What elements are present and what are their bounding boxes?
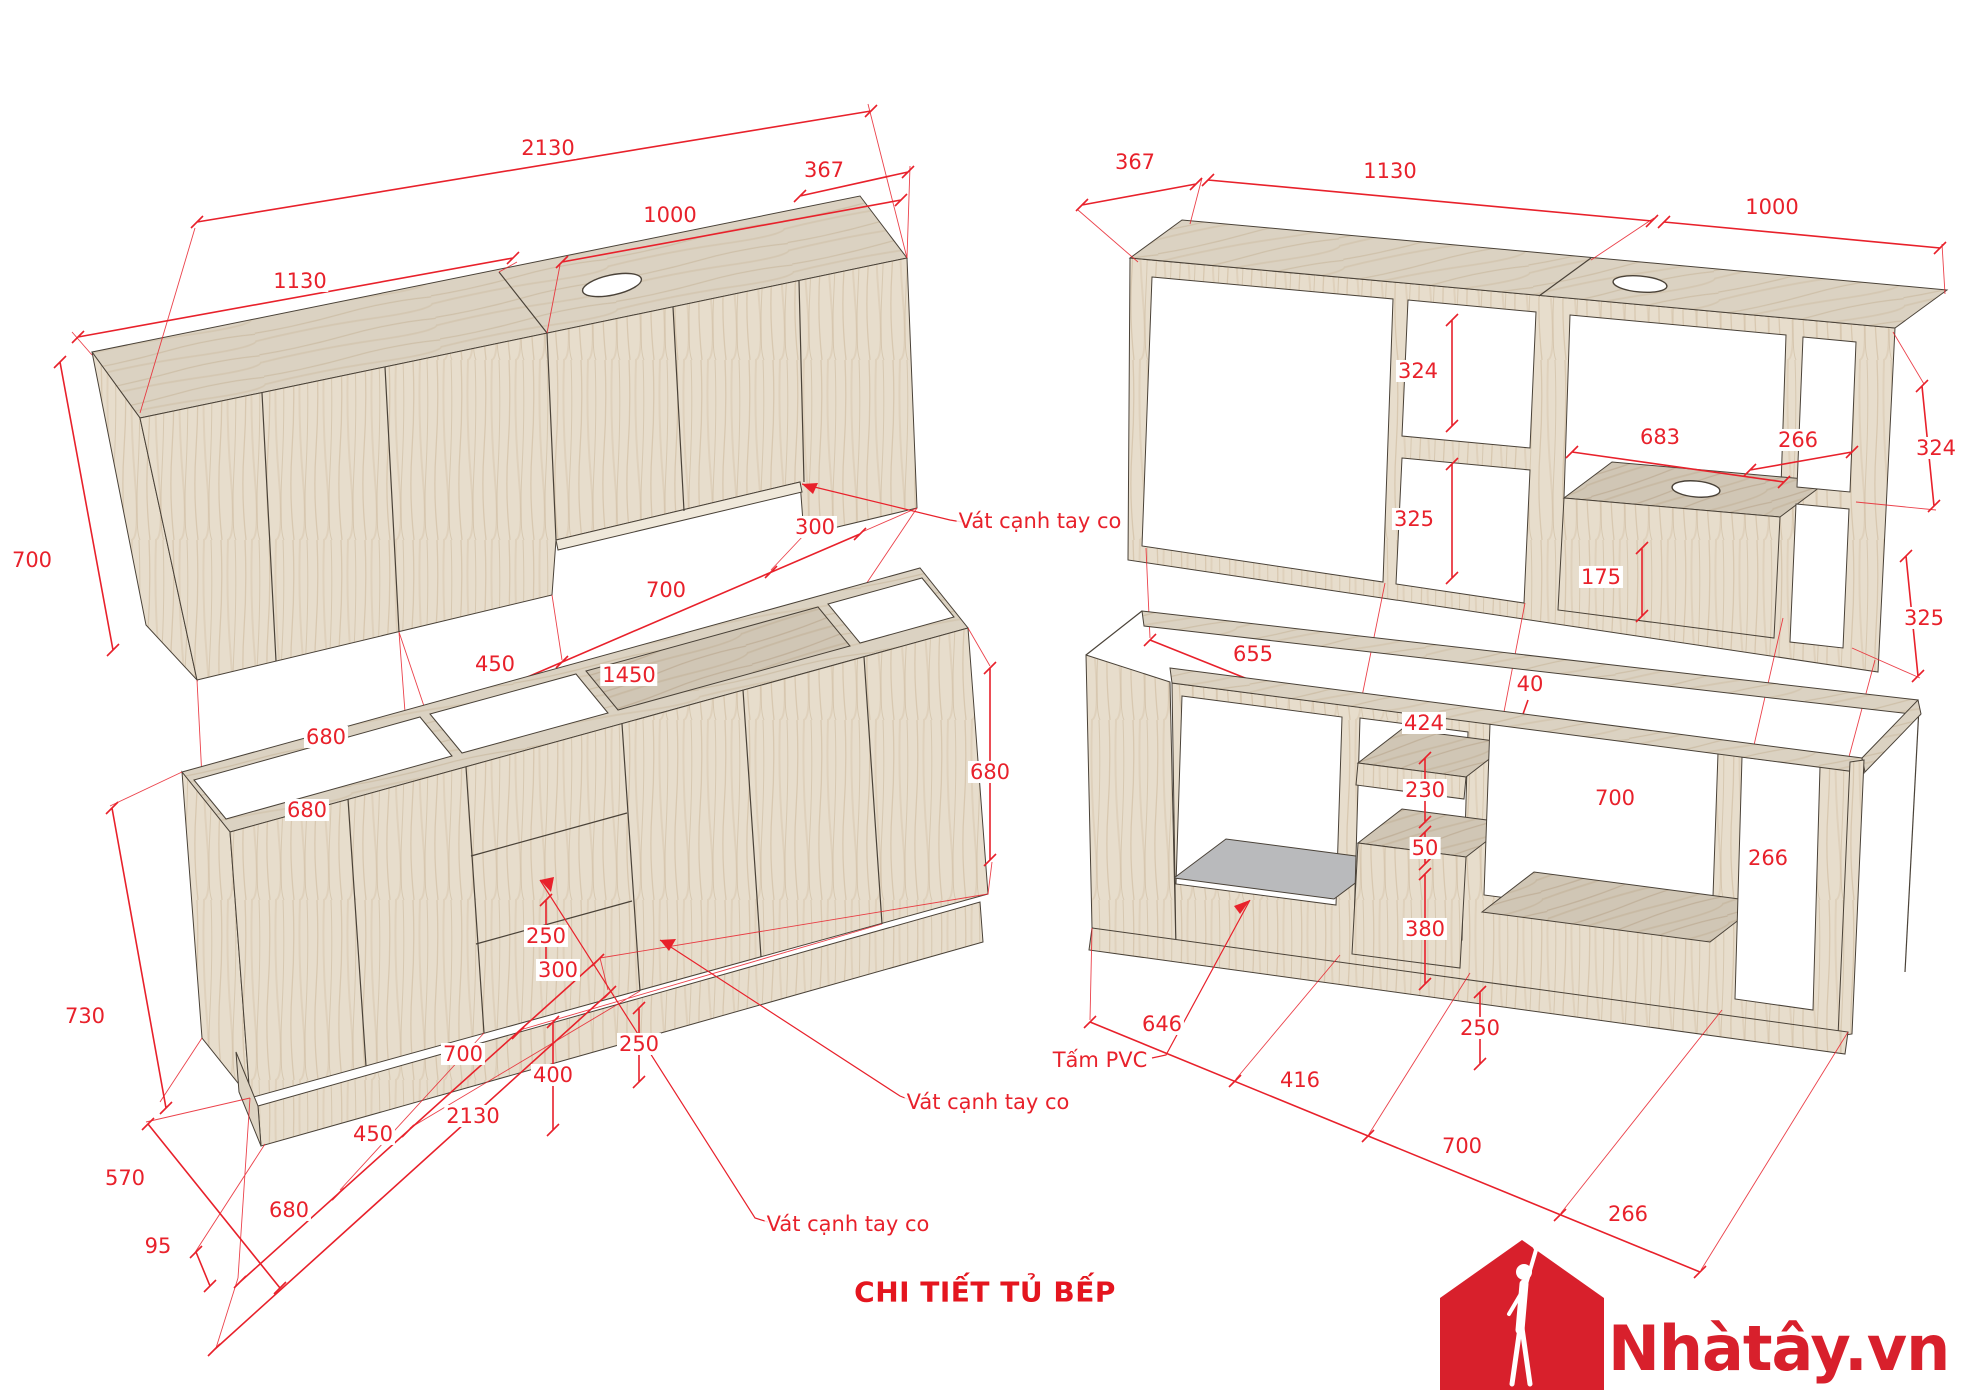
logo-house-icon xyxy=(1440,1240,1604,1390)
opening-right-upper xyxy=(1797,337,1856,492)
opening-424-lower xyxy=(1396,458,1530,603)
base-cabinet-back-view xyxy=(1084,611,1921,1278)
base-cabinet-front-view xyxy=(106,568,996,1356)
opening-right-lower xyxy=(1790,504,1849,648)
opening-left-655 xyxy=(1142,277,1393,582)
cabinet-drawings xyxy=(0,0,1974,1400)
drawing-canvas: 2130100011303677006804507003006801450Vát… xyxy=(0,0,1974,1400)
far-right-edge xyxy=(1905,707,1919,972)
left-depth-edge xyxy=(1086,611,1142,655)
opening-424-upper xyxy=(1402,300,1536,448)
opening-right-266 xyxy=(1735,757,1820,1010)
drawing-title: CHI TIẾT TỦ BẾP xyxy=(854,1276,1116,1309)
brand-text: Nhàtây.vn xyxy=(1608,1312,1949,1385)
left-side-panel xyxy=(1086,655,1176,952)
drawer2-front xyxy=(1352,843,1466,968)
